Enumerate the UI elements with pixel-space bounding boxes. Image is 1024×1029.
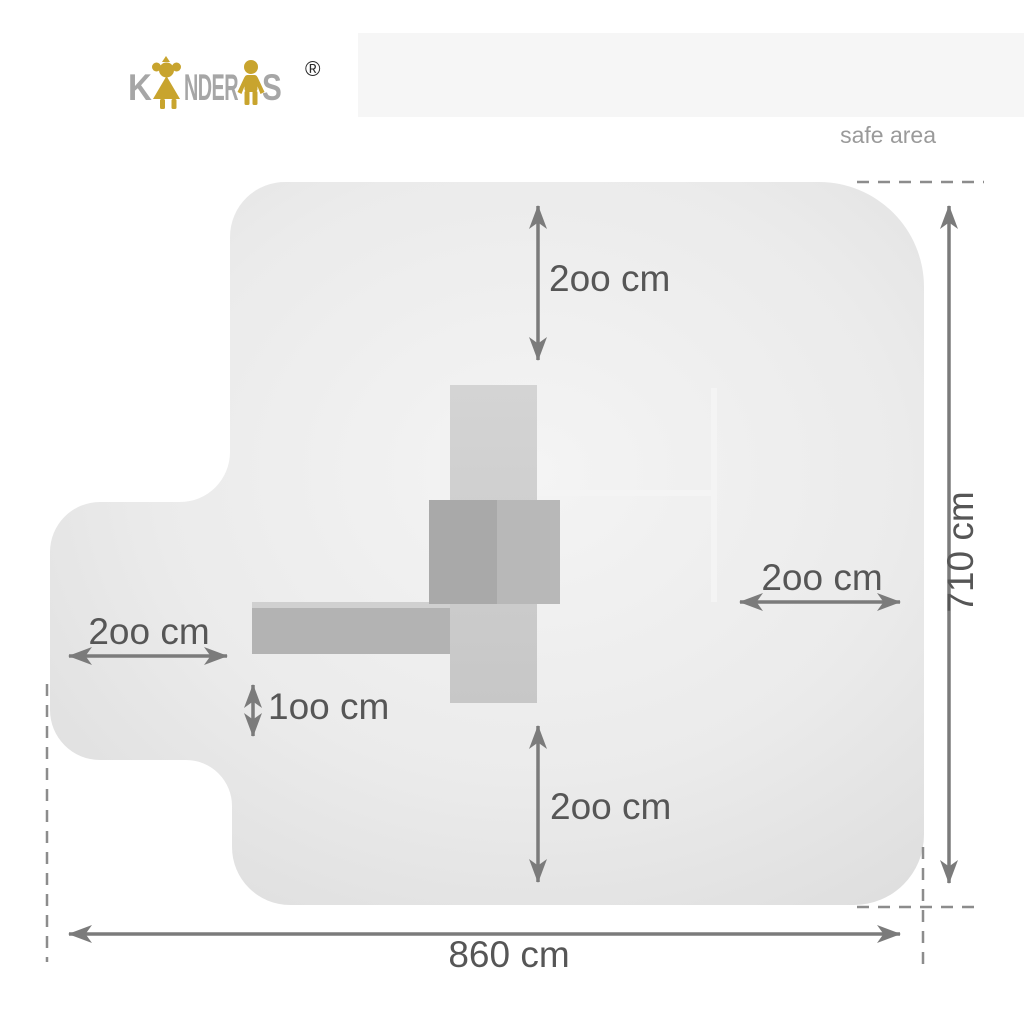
right-clearance-label: 2oo cm xyxy=(761,557,882,598)
slide-clearance-label: 1oo cm xyxy=(268,686,389,727)
registered-trademark-icon: ® xyxy=(305,58,321,81)
logo-letter-s: S xyxy=(262,67,281,108)
safe-area-diagram: K NDER S ® safe area xyxy=(0,0,1024,1024)
top-clearance-label: 2oo cm xyxy=(549,258,670,299)
platform-dark-footprint xyxy=(429,500,497,604)
logo-letter-k: K xyxy=(128,67,152,108)
top-banner-strip xyxy=(358,33,1024,117)
bottom-clearance-label: 2oo cm xyxy=(550,786,671,827)
swing-beam-line xyxy=(537,490,713,496)
girl-figure-icon xyxy=(152,56,181,109)
left-clearance-label: 2oo cm xyxy=(88,611,209,652)
slide-arm-edge xyxy=(252,602,450,608)
safe-area-diagram-page: K NDER S ® safe area xyxy=(0,0,1024,1024)
platform-mid-footprint xyxy=(497,500,560,604)
total-width-label: 860 cm xyxy=(448,934,569,975)
slide-arm-footprint xyxy=(252,608,450,654)
kinderis-logo: K NDER S ® xyxy=(128,56,321,109)
safe-area-caption: safe area xyxy=(840,122,936,148)
total-height-label: 710 cm xyxy=(940,491,981,612)
boy-figure-icon xyxy=(238,60,265,105)
logo-letters-nder: NDER xyxy=(184,67,238,108)
